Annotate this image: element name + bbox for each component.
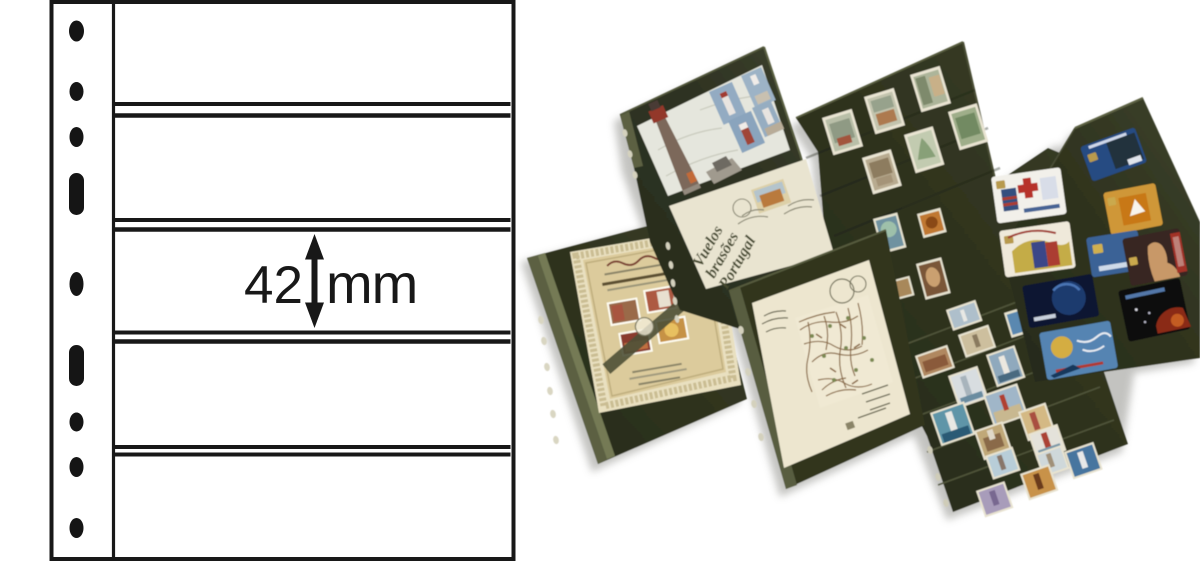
svg-text:mm: mm <box>326 252 417 315</box>
svg-text:42: 42 <box>244 256 303 315</box>
